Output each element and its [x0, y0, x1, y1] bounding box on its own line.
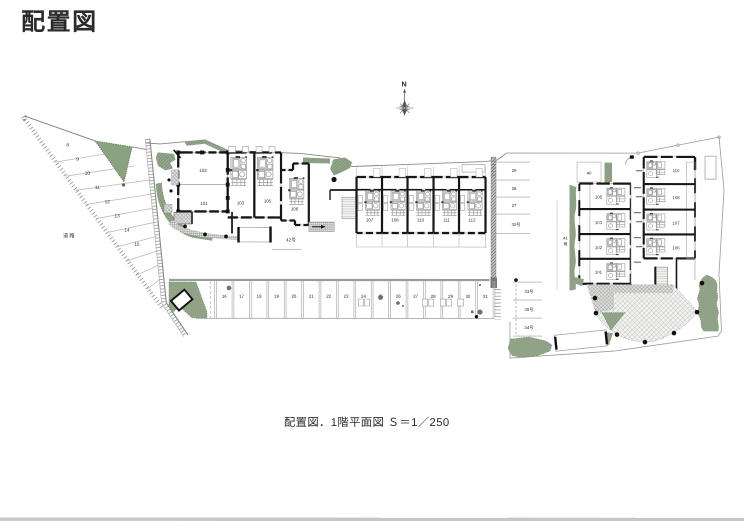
- svg-text:11: 11: [95, 185, 100, 190]
- svg-text:12: 12: [105, 199, 111, 204]
- svg-text:103: 103: [595, 220, 603, 225]
- svg-text:101: 101: [200, 201, 208, 206]
- svg-text:30号: 30号: [511, 222, 521, 227]
- svg-text:110: 110: [673, 168, 680, 173]
- svg-text:8: 8: [66, 142, 69, 147]
- svg-text:道路: 道路: [63, 232, 76, 239]
- svg-text:34号: 34号: [524, 325, 534, 330]
- svg-text:22: 22: [326, 294, 331, 299]
- svg-text:103: 103: [237, 200, 245, 205]
- svg-text:107: 107: [366, 217, 374, 222]
- svg-text:106: 106: [291, 206, 299, 211]
- svg-text:108: 108: [391, 218, 399, 223]
- svg-text:108: 108: [672, 195, 680, 200]
- svg-text:10: 10: [85, 171, 91, 176]
- svg-text:24: 24: [361, 294, 366, 299]
- svg-text:106: 106: [672, 245, 680, 250]
- svg-text:28: 28: [512, 186, 517, 191]
- svg-text:19: 19: [274, 294, 279, 299]
- svg-text:110: 110: [417, 218, 425, 223]
- svg-text:35号: 35号: [524, 307, 534, 312]
- svg-text:42号: 42号: [286, 237, 296, 242]
- svg-text:111: 111: [443, 218, 450, 223]
- svg-text:28: 28: [431, 294, 436, 299]
- svg-text:101: 101: [595, 270, 603, 275]
- svg-text:105: 105: [595, 195, 603, 200]
- svg-text:30: 30: [465, 294, 470, 299]
- svg-text:31: 31: [483, 294, 488, 299]
- svg-text:26: 26: [396, 294, 401, 299]
- svg-text:41: 41: [563, 236, 568, 241]
- svg-text:15: 15: [134, 242, 140, 247]
- svg-text:配置図．1階平面図 Ｓ＝1／250: 配置図．1階平面図 Ｓ＝1／250: [284, 416, 450, 429]
- svg-text:21: 21: [309, 294, 314, 299]
- svg-text:18: 18: [257, 294, 262, 299]
- svg-text:23: 23: [344, 294, 349, 299]
- svg-text:27: 27: [512, 203, 517, 208]
- svg-text:配置図: 配置図: [21, 9, 98, 36]
- svg-text:107: 107: [672, 221, 680, 226]
- svg-text:20: 20: [291, 294, 296, 299]
- svg-text:9: 9: [76, 157, 79, 162]
- svg-text:112: 112: [469, 218, 477, 223]
- svg-text:17: 17: [239, 294, 244, 299]
- svg-text:27: 27: [413, 294, 418, 299]
- svg-text:40: 40: [587, 171, 592, 176]
- svg-text:13: 13: [115, 213, 121, 218]
- svg-text:102: 102: [595, 245, 603, 250]
- svg-text:102: 102: [199, 168, 207, 173]
- svg-text:29: 29: [512, 168, 517, 173]
- svg-text:14: 14: [124, 228, 130, 233]
- svg-text:号: 号: [563, 242, 567, 247]
- svg-text:16: 16: [222, 294, 227, 299]
- svg-text:29: 29: [448, 294, 453, 299]
- svg-text:105: 105: [264, 198, 272, 203]
- svg-text:33号: 33号: [524, 289, 534, 294]
- svg-text:N: N: [401, 80, 406, 89]
